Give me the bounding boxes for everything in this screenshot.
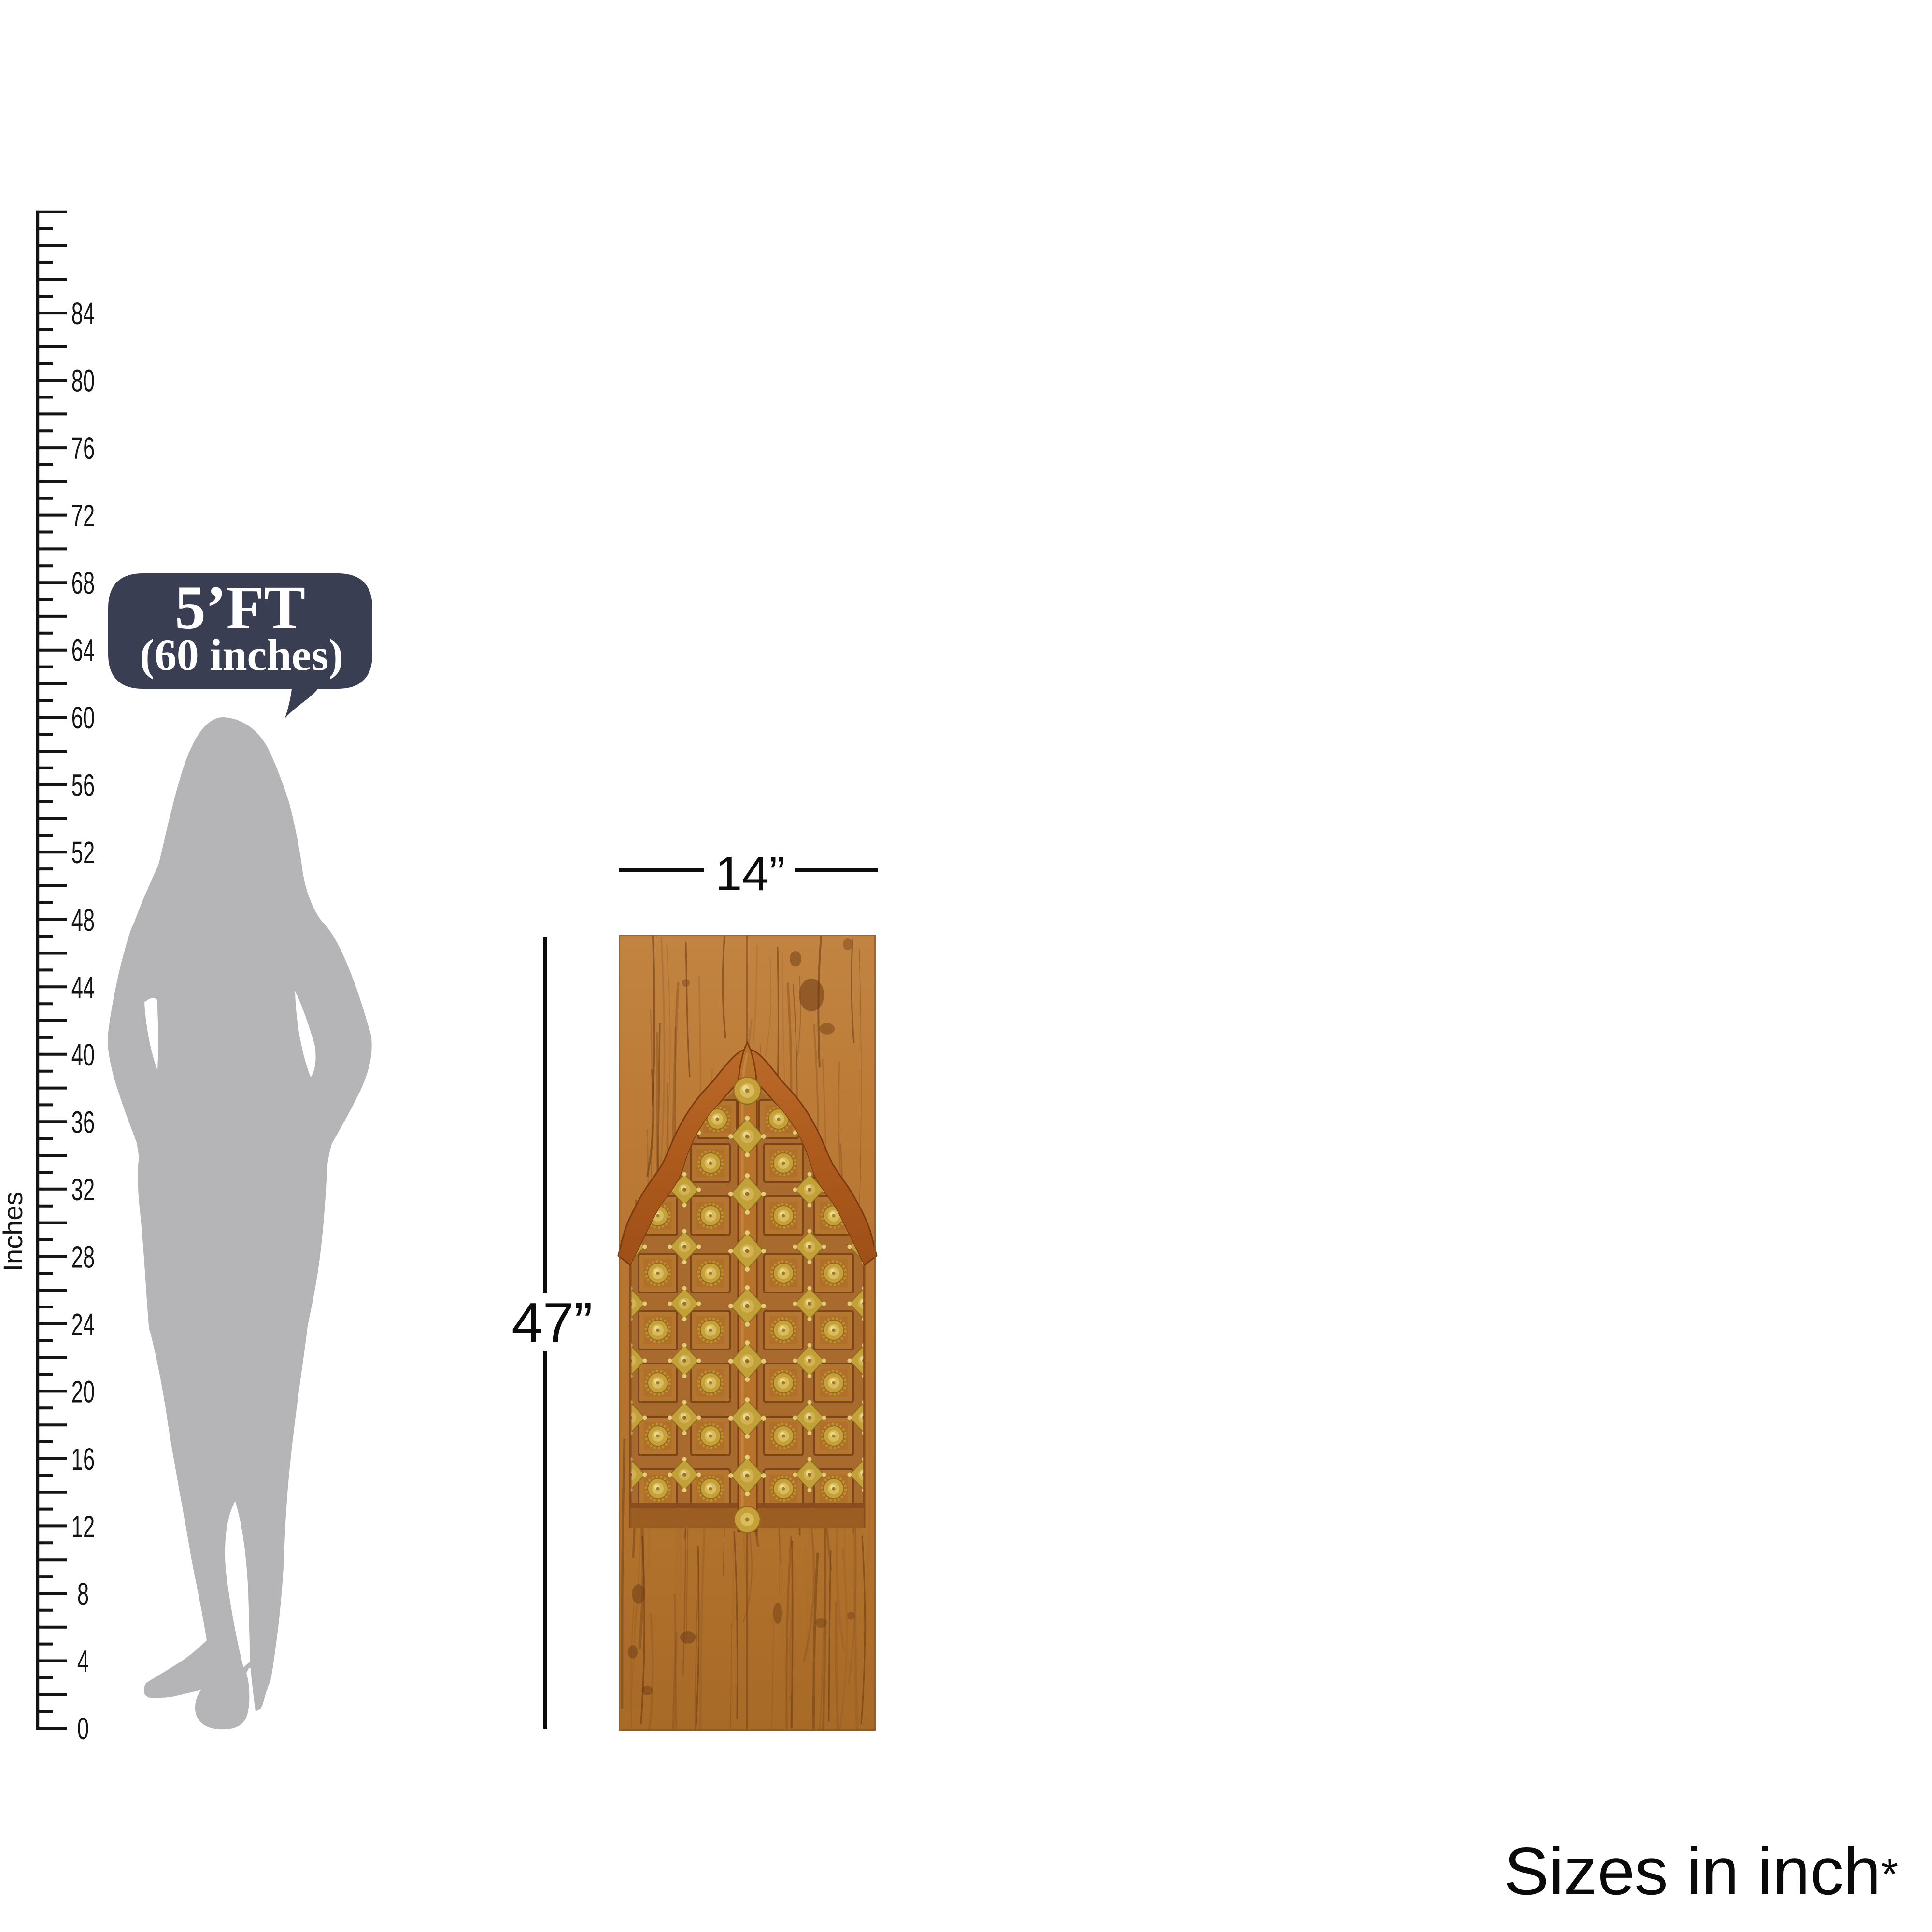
svg-text:28: 28	[71, 1239, 95, 1275]
svg-text:20: 20	[71, 1374, 95, 1409]
svg-text:52: 52	[71, 835, 95, 870]
svg-text:48: 48	[71, 902, 95, 938]
svg-text:40: 40	[71, 1037, 95, 1072]
svg-text:14”: 14”	[715, 847, 785, 901]
svg-text:12: 12	[71, 1509, 95, 1544]
svg-text:32: 32	[71, 1172, 95, 1207]
svg-text:8: 8	[77, 1577, 89, 1612]
svg-text:60: 60	[71, 700, 95, 736]
svg-text:68: 68	[71, 566, 95, 601]
svg-text:56: 56	[71, 767, 95, 803]
svg-text:24: 24	[71, 1307, 95, 1342]
svg-text:84: 84	[71, 296, 95, 331]
svg-text:44: 44	[71, 970, 95, 1005]
svg-text:16: 16	[71, 1441, 95, 1477]
svg-text:76: 76	[71, 431, 95, 466]
svg-text:(60 inches): (60 inches)	[140, 630, 343, 680]
svg-text:36: 36	[71, 1105, 95, 1140]
svg-text:Sizes in inch*: Sizes in inch*	[1504, 1834, 1898, 1909]
svg-text:4: 4	[77, 1644, 89, 1679]
svg-text:72: 72	[71, 498, 95, 533]
svg-text:Inches: Inches	[0, 1192, 28, 1272]
svg-text:47”: 47”	[511, 1291, 593, 1354]
svg-text:0: 0	[77, 1711, 89, 1747]
svg-text:64: 64	[71, 633, 95, 668]
svg-text:80: 80	[71, 363, 95, 398]
